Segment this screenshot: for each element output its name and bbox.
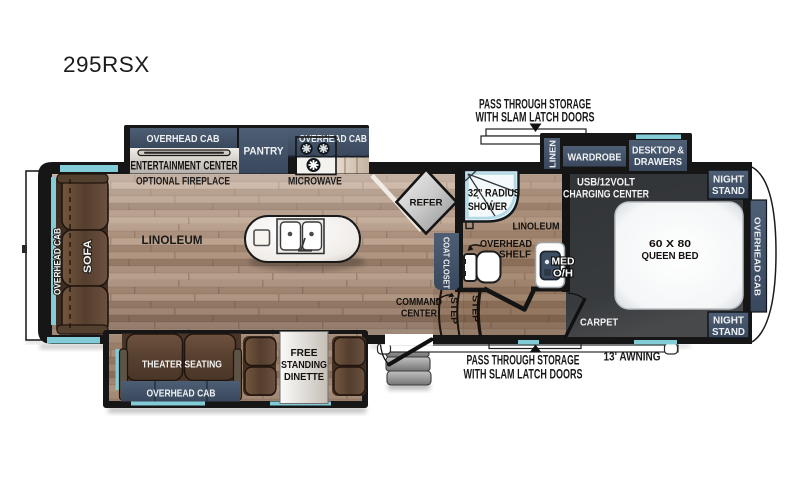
svg-text:NIGHT: NIGHT (713, 175, 744, 186)
svg-text:STEP: STEP (471, 295, 481, 322)
svg-text:O/H: O/H (553, 269, 573, 280)
svg-text:SOFA: SOFA (82, 240, 94, 273)
svg-text:SHOWER: SHOWER (468, 201, 507, 213)
svg-text:DESKTOP &: DESKTOP & (632, 146, 684, 157)
svg-text:REFER: REFER (410, 198, 444, 208)
svg-text:OVERHEAD CAB: OVERHEAD CAB (147, 389, 216, 400)
svg-text:PANTRY: PANTRY (244, 146, 285, 158)
svg-text:OVERHEAD: OVERHEAD (480, 239, 532, 250)
svg-text:STAND: STAND (712, 186, 745, 197)
svg-text:STANDING: STANDING (281, 359, 327, 371)
svg-text:CENTER: CENTER (401, 308, 437, 320)
svg-text:13' AWNING: 13' AWNING (604, 352, 661, 364)
svg-text:OVERHEAD CAB: OVERHEAD CAB (753, 217, 763, 296)
svg-text:ENTERTAINMENT CENTER: ENTERTAINMENT CENTER (131, 159, 238, 173)
svg-text:SHELF: SHELF (499, 250, 531, 261)
svg-text:USB/12VOLT: USB/12VOLT (577, 177, 635, 189)
svg-text:32" RADIUS: 32" RADIUS (468, 188, 520, 200)
svg-text:CHARGING CENTER: CHARGING CENTER (563, 189, 649, 201)
svg-text:CARPET: CARPET (580, 317, 619, 329)
svg-text:WITH SLAM LATCH DOORS: WITH SLAM LATCH DOORS (476, 110, 595, 125)
svg-text:COMMAND: COMMAND (396, 296, 442, 308)
svg-text:LINOLEUM: LINOLEUM (513, 222, 560, 233)
svg-text:OVERHEAD CAB: OVERHEAD CAB (53, 228, 63, 295)
svg-text:NIGHT: NIGHT (713, 316, 744, 327)
svg-text:295RSX: 295RSX (63, 52, 150, 77)
svg-text:MICROWAVE: MICROWAVE (288, 176, 342, 188)
svg-text:OPTIONAL FIREPLACE: OPTIONAL FIREPLACE (136, 176, 230, 188)
svg-text:LINOLEUM: LINOLEUM (142, 235, 203, 247)
svg-text:PASS THROUGH STORAGE: PASS THROUGH STORAGE (467, 353, 580, 368)
svg-text:60 X 80: 60 X 80 (649, 238, 691, 250)
svg-text:QUEEN BED: QUEEN BED (642, 250, 699, 262)
svg-text:THEATER SEATING: THEATER SEATING (142, 359, 222, 371)
svg-text:WITH SLAM LATCH DOORS: WITH SLAM LATCH DOORS (464, 367, 583, 382)
svg-text:DRAWERS: DRAWERS (634, 157, 682, 168)
svg-text:MED: MED (552, 257, 575, 268)
svg-text:COAT CLOSET: COAT CLOSET (442, 237, 451, 289)
svg-text:FREE: FREE (291, 347, 318, 359)
svg-text:WARDROBE: WARDROBE (568, 152, 622, 164)
svg-text:STAND: STAND (712, 327, 745, 338)
svg-text:LINEN: LINEN (548, 140, 558, 168)
svg-text:OVERHEAD CAB: OVERHEAD CAB (147, 133, 220, 145)
svg-text:STEP: STEP (449, 297, 459, 324)
svg-text:DINETTE: DINETTE (284, 371, 324, 383)
